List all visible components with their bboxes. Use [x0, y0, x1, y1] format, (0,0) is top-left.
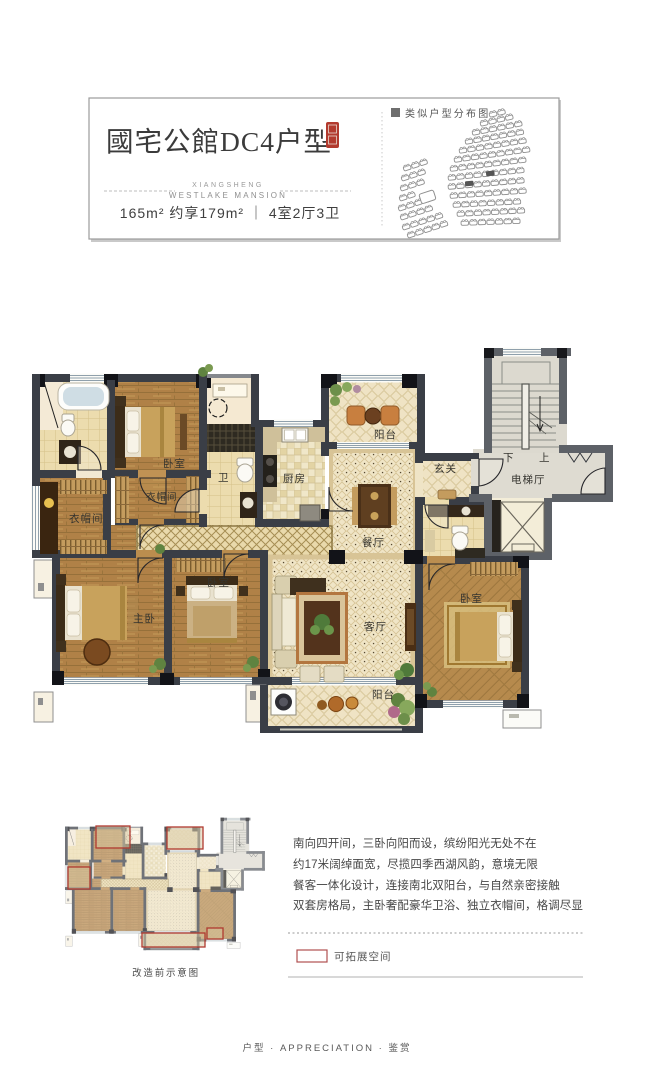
svg-text:衣帽间: 衣帽间 [69, 512, 104, 525]
svg-text:WESTLAKE MANSION: WESTLAKE MANSION [169, 191, 287, 200]
svg-text:XIANGSHENG: XIANGSHENG [192, 182, 264, 189]
svg-text:餐客一体化设计，连接南北双阳台，与自然亲密接触: 餐客一体化设计，连接南北双阳台，与自然亲密接触 [293, 878, 560, 892]
svg-text:衣帽间: 衣帽间 [146, 491, 178, 503]
svg-text:可拓展空间: 可拓展空间 [334, 950, 392, 963]
svg-text:阳台: 阳台 [372, 688, 395, 701]
svg-text:卧室: 卧室 [163, 457, 186, 470]
svg-text:类似户型分布图: 类似户型分布图 [405, 107, 490, 120]
svg-text:165m² 约享179m² ｜ 4室2厅3卫: 165m² 约享179m² ｜ 4室2厅3卫 [120, 205, 340, 221]
svg-text:双套房格局，主卧奢配豪华卫浴、独立衣帽间，格调尽显: 双套房格局，主卧奢配豪华卫浴、独立衣帽间，格调尽显 [293, 898, 583, 912]
svg-text:卧室: 卧室 [207, 576, 230, 589]
svg-text:厨房: 厨房 [283, 472, 306, 485]
svg-text:阳台: 阳台 [374, 428, 397, 441]
svg-text:户型 · APPRECIATION · 鉴赏: 户型 · APPRECIATION · 鉴赏 [243, 1042, 412, 1054]
svg-text:下: 下 [503, 452, 515, 464]
svg-text:主卧: 主卧 [133, 612, 156, 625]
svg-text:餐厅: 餐厅 [362, 536, 385, 549]
svg-text:玄关: 玄关 [434, 462, 457, 475]
svg-text:约17米阔绰面宽，尽揽四季西湖风韵，意境无限: 约17米阔绰面宽，尽揽四季西湖风韵，意境无限 [293, 857, 538, 871]
svg-text:改造前示意图: 改造前示意图 [132, 967, 200, 979]
svg-text:上: 上 [539, 452, 551, 464]
svg-text:卧室: 卧室 [460, 592, 483, 605]
svg-text:卫: 卫 [218, 472, 230, 484]
svg-text:國宅公館DC4户型: 國宅公館DC4户型 [106, 126, 332, 157]
svg-text:南向四开间，三卧向阳而设，缤纷阳光无处不在: 南向四开间，三卧向阳而设，缤纷阳光无处不在 [293, 836, 537, 850]
svg-text:客厅: 客厅 [364, 620, 387, 633]
svg-text:电梯厅: 电梯厅 [511, 473, 546, 486]
